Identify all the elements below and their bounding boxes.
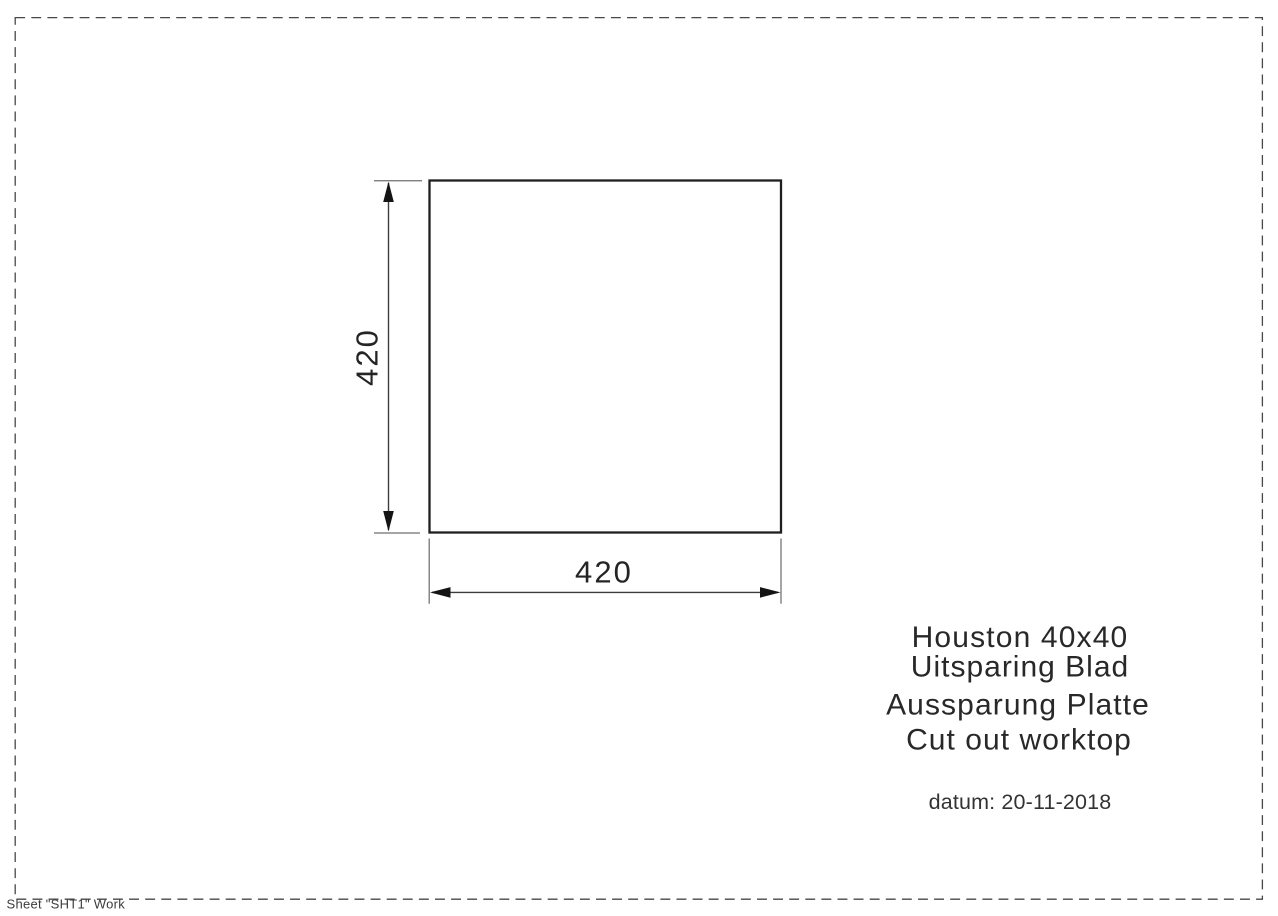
svg-text:Aussparung Platte: Aussparung Platte [886,689,1150,722]
svg-text:Sheet "SHT1" Work: Sheet "SHT1" Work [7,897,126,912]
svg-text:Uitsparing Blad: Uitsparing Blad [911,651,1129,684]
svg-text:420: 420 [575,555,633,590]
svg-text:Cut out worktop: Cut out worktop [906,724,1132,757]
svg-text:Houston 40x40: Houston 40x40 [912,621,1129,654]
svg-text:datum: 20-11-2018: datum: 20-11-2018 [929,790,1112,814]
svg-text:420: 420 [349,328,384,386]
